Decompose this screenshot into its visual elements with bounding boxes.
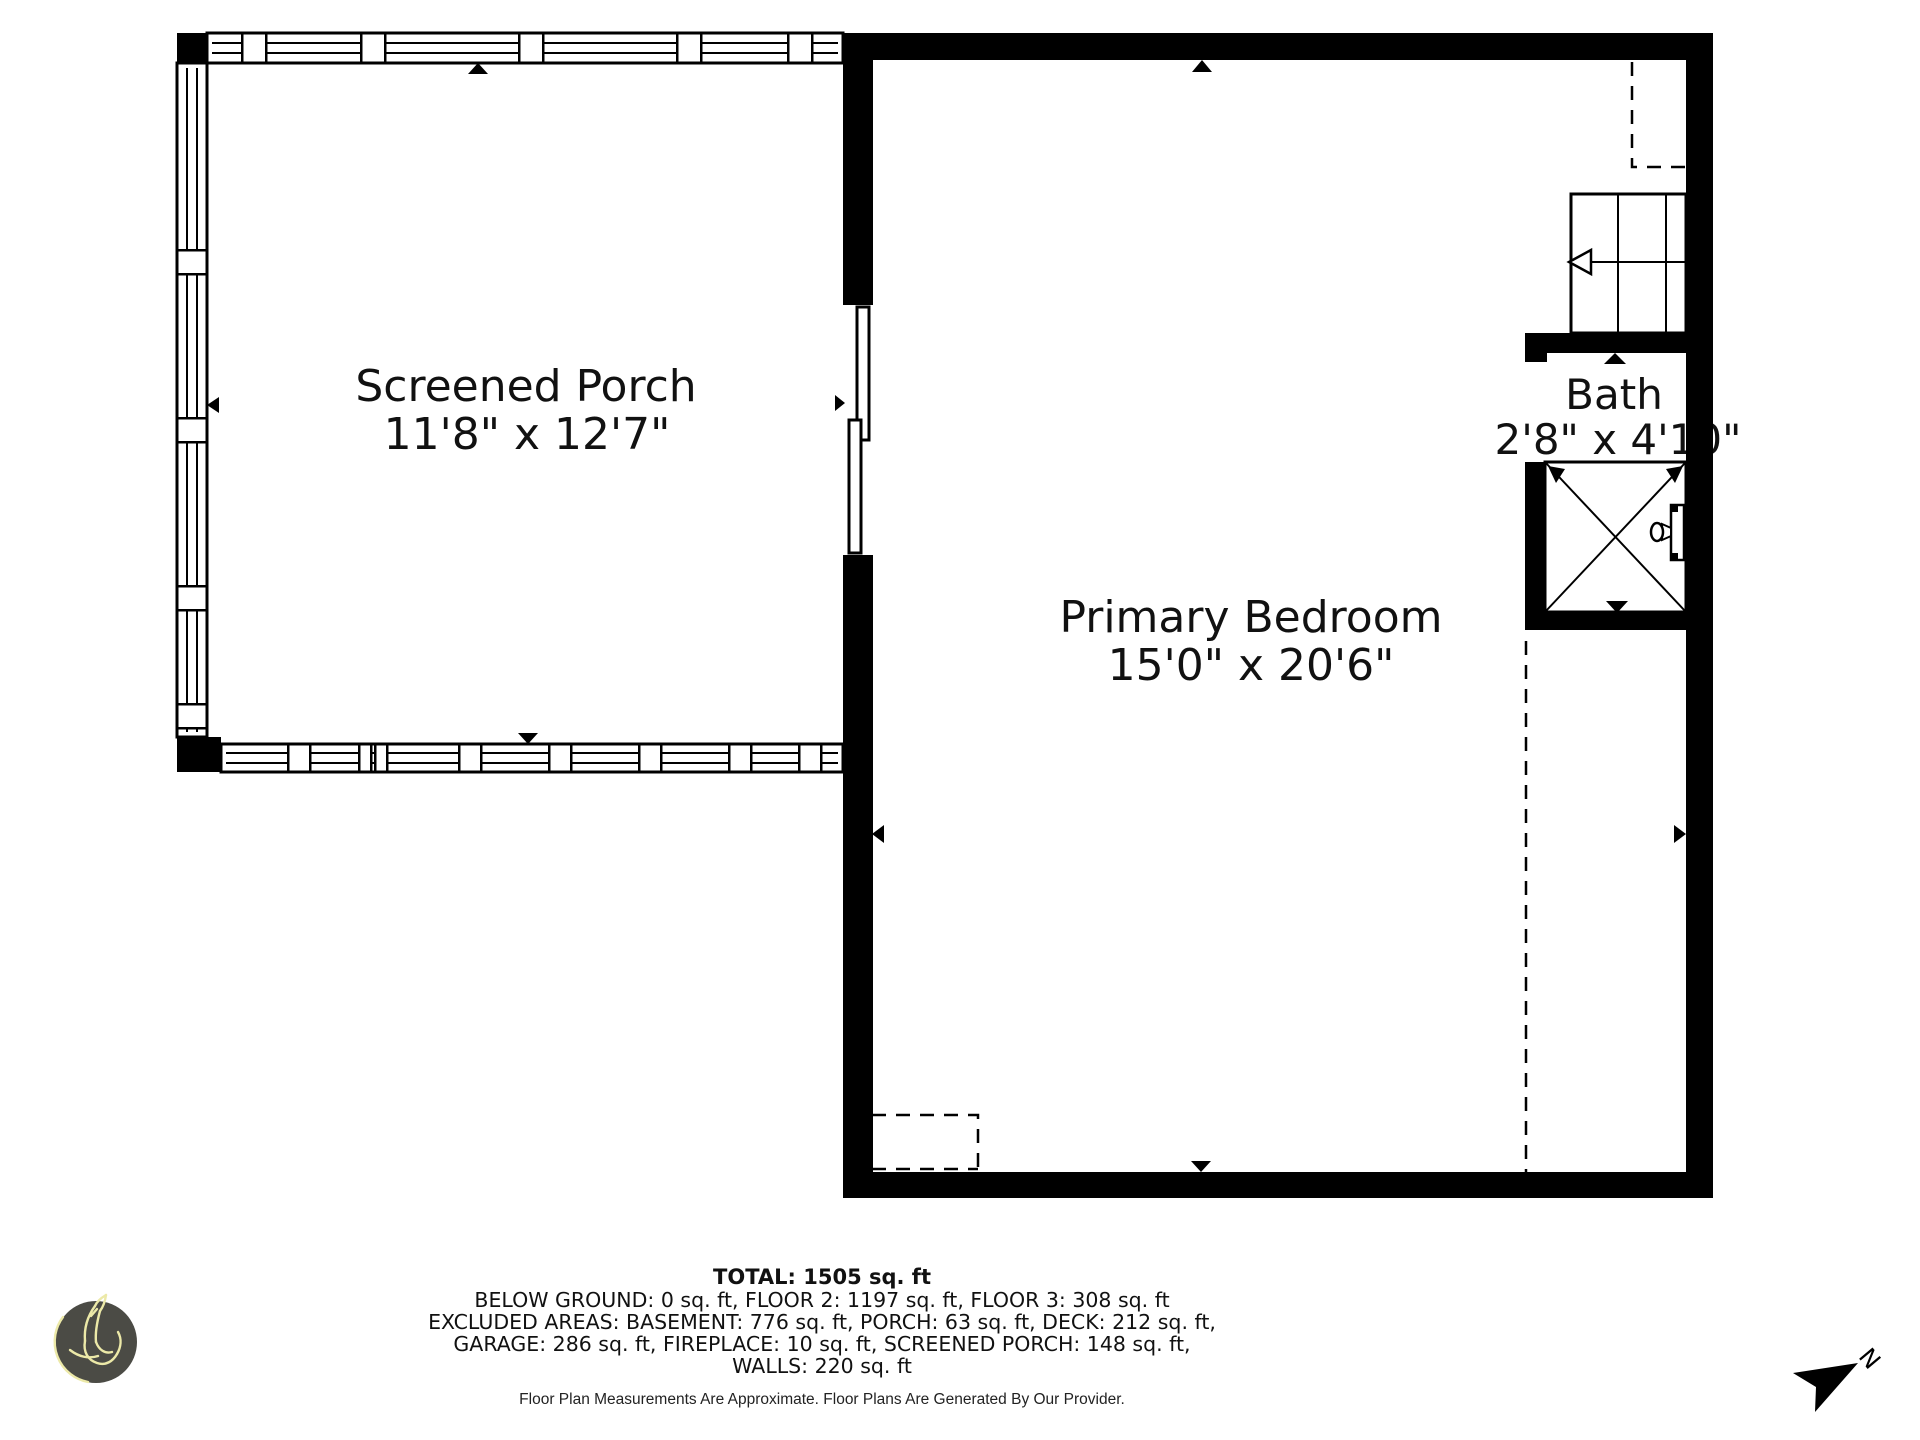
bedroom-marker-bottom [1191,1161,1211,1172]
north-label: N [1853,1343,1886,1375]
wall-bath-top-stub [1525,353,1547,362]
porch-window-band-left [177,63,207,737]
door-markers [207,60,1686,1172]
floor-plan-canvas: 2'8" x 4'10" [0,0,1920,1440]
bedroom-marker-top [1192,60,1212,72]
wolf-logo-icon [55,1295,137,1383]
porch-marker-bottom [518,733,538,744]
primary-bedroom-label: Primary Bedroom [1059,592,1442,643]
shower-head-icon [1651,505,1684,560]
wall-left-lower [843,555,873,1198]
stairs [1569,194,1686,333]
screened-porch-dims: 11'8" x 12'7" [384,409,671,460]
bath-door-marker [1604,353,1626,364]
north-arrow-icon: N [1793,1343,1886,1412]
summary-line-1: BELOW GROUND: 0 sq. ft, FLOOR 2: 1197 sq… [474,1288,1169,1312]
porch-marker-top [468,63,488,74]
wall-shower-left [1525,462,1545,630]
primary-bedroom-dims: 15'0" x 20'6" [1108,640,1395,691]
porch-corner-top-left [177,33,207,63]
porch-window-band-bottom [221,744,843,772]
fireplace-dashed-outline [872,1115,978,1172]
porch-window-band-top [207,33,843,63]
floor-plan-page: 2'8" x 4'10" [0,0,1920,1440]
shower [1545,462,1686,613]
summary-line-4: WALLS: 220 sq. ft [732,1354,912,1378]
wall-bottom [843,1172,1713,1198]
bath-label: Bath [1565,370,1663,419]
sliding-door [835,307,869,553]
wall-shower-bottom [1525,612,1686,630]
window-mullions-bottom [288,744,821,772]
wall-left-upper [843,33,873,305]
wall-bath-top [1525,333,1713,353]
door-marker-sliding [835,395,845,411]
summary-line-3: GARAGE: 286 sq. ft, FIREPLACE: 10 sq. ft… [453,1332,1190,1356]
total-area-text: TOTAL: 1505 sq. ft [713,1265,931,1289]
wall-top [843,33,1713,60]
porch-marker-left [207,397,219,413]
bedroom-marker-left [872,825,884,843]
disclaimer-text: Floor Plan Measurements Are Approximate.… [519,1391,1125,1408]
porch-corner-bottom-left [177,737,221,772]
bedroom-marker-right [1674,825,1686,843]
screened-porch-label: Screened Porch [355,361,696,412]
wall-right [1686,33,1713,1198]
area-summary: TOTAL: 1505 sq. ft BELOW GROUND: 0 sq. f… [428,1265,1216,1408]
summary-line-2: EXCLUDED AREAS: BASEMENT: 776 sq. ft, PO… [428,1310,1216,1334]
closet-dashed-outline [1632,62,1686,167]
walls [177,33,1713,1198]
